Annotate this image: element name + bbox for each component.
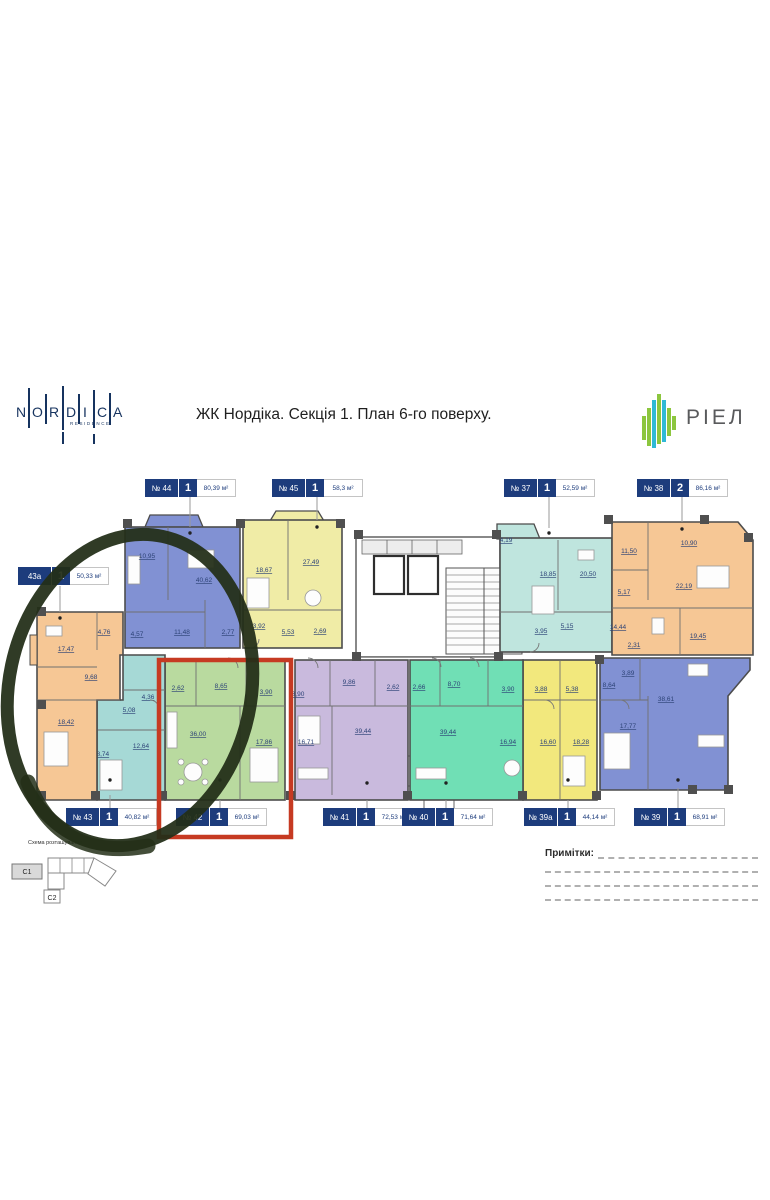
room-area: 3,90 — [260, 689, 273, 696]
unit-area: 86,16 м² — [689, 479, 728, 497]
room-area: 5,38 — [566, 686, 579, 693]
room-area: 16,94 — [500, 739, 517, 746]
apartment-44-region: 10,95 40,62 11,48 4,57 2,77 — [125, 515, 240, 648]
room-area: 18,42 — [58, 719, 75, 726]
floor-plan: 10,95 40,62 11,48 4,57 2,77 18,67 27,49 … — [0, 0, 770, 1200]
room-area: 17,77 — [620, 723, 637, 730]
room-area: 8,70 — [448, 681, 461, 688]
room-area: 9,86 — [343, 679, 356, 686]
notes-label: Примітки: — [545, 848, 594, 859]
unit-label-39a: № 39а144,14 м² — [524, 808, 615, 826]
apartment-39-region: 3,89 8,64 38,61 17,77 — [600, 658, 750, 790]
apartment-39a-region: 3,88 5,38 16,60 18,28 — [523, 660, 597, 800]
unit-number: № 39а — [524, 808, 558, 826]
room-area: 27,49 — [303, 559, 320, 566]
room-area: 5,08 — [123, 707, 136, 714]
room-area: 20,50 — [580, 571, 597, 578]
room-area: 2,69 — [314, 628, 327, 635]
unit-number: № 45 — [272, 479, 306, 497]
room-area: 3,89 — [622, 670, 635, 677]
room-area: 16,71 — [298, 739, 315, 746]
unit-label-40: № 40171,64 м² — [402, 808, 493, 826]
room-area: 11,50 — [621, 548, 637, 555]
unit-area: 80,39 м² — [197, 479, 236, 497]
room-area: 19,45 — [690, 633, 707, 640]
room-count: 2 — [671, 479, 689, 497]
notes-line — [545, 898, 758, 901]
unit-label-43: № 43140,82 м² — [66, 808, 157, 826]
apartment-45-region: 18,67 27,49 3,92 5,53 2,69 — [243, 511, 342, 648]
unit-number: № 38 — [637, 479, 671, 497]
room-area: 5,53 — [282, 629, 295, 636]
room-area: 2,77 — [222, 629, 235, 636]
room-area: 18,85 — [540, 571, 557, 578]
scheme-c1-label: С1 — [23, 869, 32, 876]
room-area: 3,90 — [502, 686, 515, 693]
unit-label-43a: 43а150,33 м² — [18, 567, 109, 585]
unit-number: № 37 — [504, 479, 538, 497]
room-area: 3,90 — [292, 691, 305, 698]
room-area: 9,68 — [85, 674, 98, 681]
unit-number: № 44 — [145, 479, 179, 497]
unit-number: № 42 — [176, 808, 210, 826]
room-area: 18,28 — [573, 739, 590, 746]
apartment-37-region: 4,19 18,85 20,50 3,95 5,15 — [497, 524, 612, 652]
scheme-c2-label: С2 — [48, 895, 57, 902]
notes-line — [598, 856, 758, 859]
room-area: 5,17 — [618, 589, 631, 596]
room-area: 4,19 — [500, 537, 513, 544]
room-count: 1 — [538, 479, 556, 497]
room-area: 3,95 — [535, 628, 548, 635]
room-area: 2,62 — [387, 684, 400, 691]
room-area: 3,92 — [253, 623, 266, 630]
room-area: 12,64 — [133, 743, 150, 750]
unit-area: 40,82 м² — [118, 808, 157, 826]
notes-line — [545, 870, 758, 873]
room-count: 1 — [52, 567, 70, 585]
scheme-drawing: С1 С2 — [8, 846, 138, 906]
room-area: 11,48 — [174, 629, 190, 636]
room-count: 1 — [436, 808, 454, 826]
room-area: 2,31 — [628, 642, 641, 649]
notes-section: Примітки: — [545, 848, 758, 901]
apartment-42-region: 2,62 8,65 3,90 36,00 17,86 — [165, 660, 285, 800]
room-area: 39,44 — [355, 728, 372, 735]
unit-area: 69,03 м² — [228, 808, 267, 826]
location-scheme: Схема розташування С1 С2 — [8, 840, 148, 911]
room-area: 10,95 — [139, 553, 156, 560]
unit-label-44: № 44180,39 м² — [145, 479, 236, 497]
room-area: 14,44 — [610, 624, 627, 631]
room-area: 8,65 — [215, 683, 228, 690]
room-area: 4,57 — [131, 631, 144, 638]
unit-label-37: № 37152,59 м² — [504, 479, 595, 497]
unit-label-39: № 39168,91 м² — [634, 808, 725, 826]
unit-number: № 39 — [634, 808, 668, 826]
room-area: 16,60 — [540, 739, 557, 746]
unit-area: 44,14 м² — [576, 808, 615, 826]
page: N O R D I C A RESIDENCE ЖК Нордіка. Секц… — [0, 0, 770, 1200]
unit-label-38: № 38286,16 м² — [637, 479, 728, 497]
room-area: 18,67 — [256, 567, 273, 574]
room-area: 3,88 — [535, 686, 548, 693]
unit-area: 50,33 м² — [70, 567, 109, 585]
elevator-shaft — [408, 556, 438, 594]
unit-number: № 41 — [323, 808, 357, 826]
elevator-shaft — [374, 556, 404, 594]
unit-area: 52,59 м² — [556, 479, 595, 497]
room-count: 1 — [306, 479, 324, 497]
room-area: 39,44 — [440, 729, 457, 736]
room-count: 1 — [210, 808, 228, 826]
room-area: 5,15 — [561, 623, 574, 630]
room-count: 1 — [357, 808, 375, 826]
room-count: 1 — [100, 808, 118, 826]
unit-area: 58,3 м² — [324, 479, 363, 497]
unit-number: № 40 — [402, 808, 436, 826]
room-count: 1 — [179, 479, 197, 497]
room-area: 40,62 — [196, 577, 213, 584]
room-count: 1 — [558, 808, 576, 826]
room-area: 38,61 — [658, 696, 675, 703]
room-count: 1 — [668, 808, 686, 826]
unit-area: 71,64 м² — [454, 808, 493, 826]
unit-number: № 43 — [66, 808, 100, 826]
room-area: 36,00 — [190, 731, 207, 738]
unit-label-41: № 41172,53 м² — [323, 808, 414, 826]
room-area: 8,64 — [603, 682, 616, 689]
room-area: 17,47 — [58, 646, 75, 653]
room-area: 4,76 — [98, 629, 111, 636]
room-area: 2,62 — [172, 685, 185, 692]
apartment-38-region: 11,50 10,90 22,19 5,17 14,44 2,31 19,45 — [610, 522, 753, 655]
room-area: 22,19 — [676, 583, 693, 590]
unit-label-42: № 42169,03 м² — [176, 808, 267, 826]
unit-label-45: № 45158,3 м² — [272, 479, 363, 497]
unit-area: 68,91 м² — [686, 808, 725, 826]
apartment-41-region: 3,90 9,86 2,62 39,44 16,71 — [292, 660, 408, 800]
room-area: 17,86 — [256, 739, 273, 746]
unit-number: 43а — [18, 567, 52, 585]
notes-line — [545, 884, 758, 887]
room-area: 2,66 — [413, 684, 426, 691]
room-area: 10,90 — [681, 540, 698, 547]
apartment-40-region: 2,66 8,70 3,90 39,44 16,94 — [410, 660, 523, 800]
